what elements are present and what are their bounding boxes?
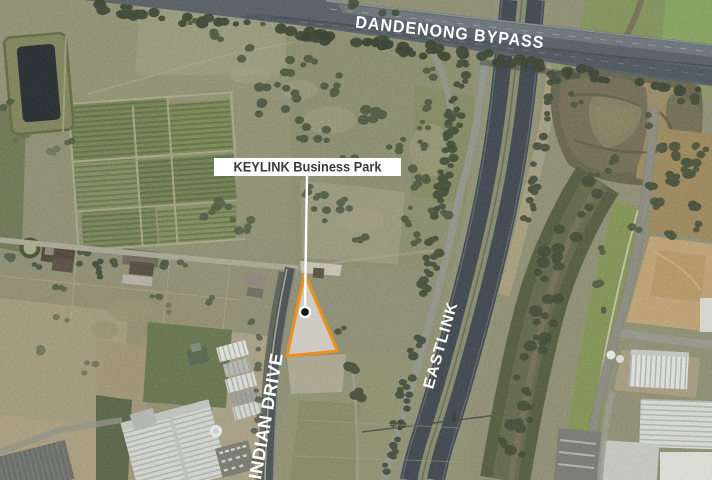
- svg-text:KEYLINK Business Park: KEYLINK Business Park: [234, 160, 382, 175]
